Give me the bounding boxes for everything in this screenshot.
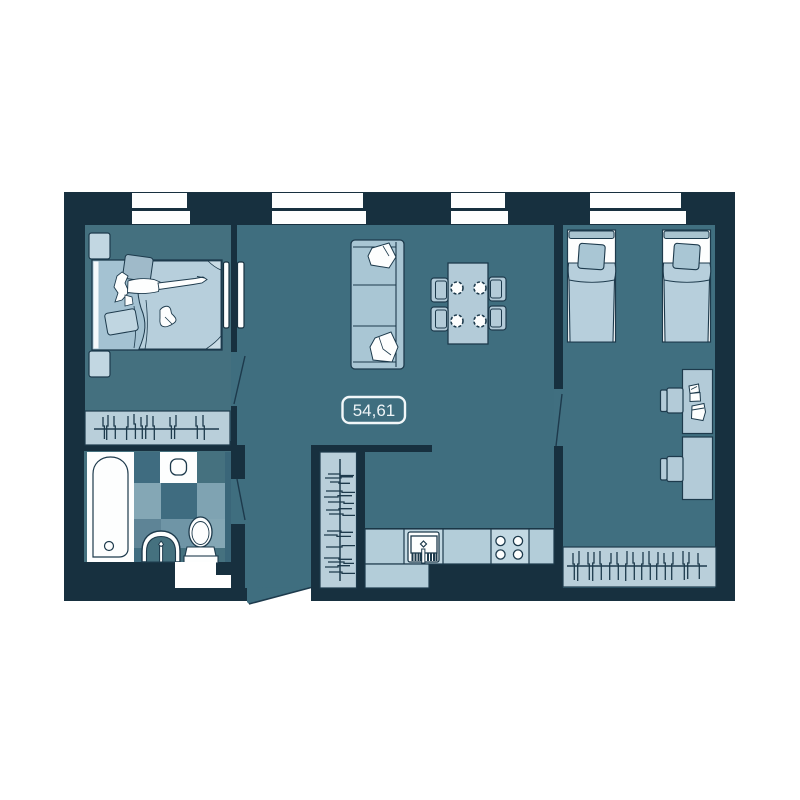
- svg-text:54,61: 54,61: [353, 401, 396, 420]
